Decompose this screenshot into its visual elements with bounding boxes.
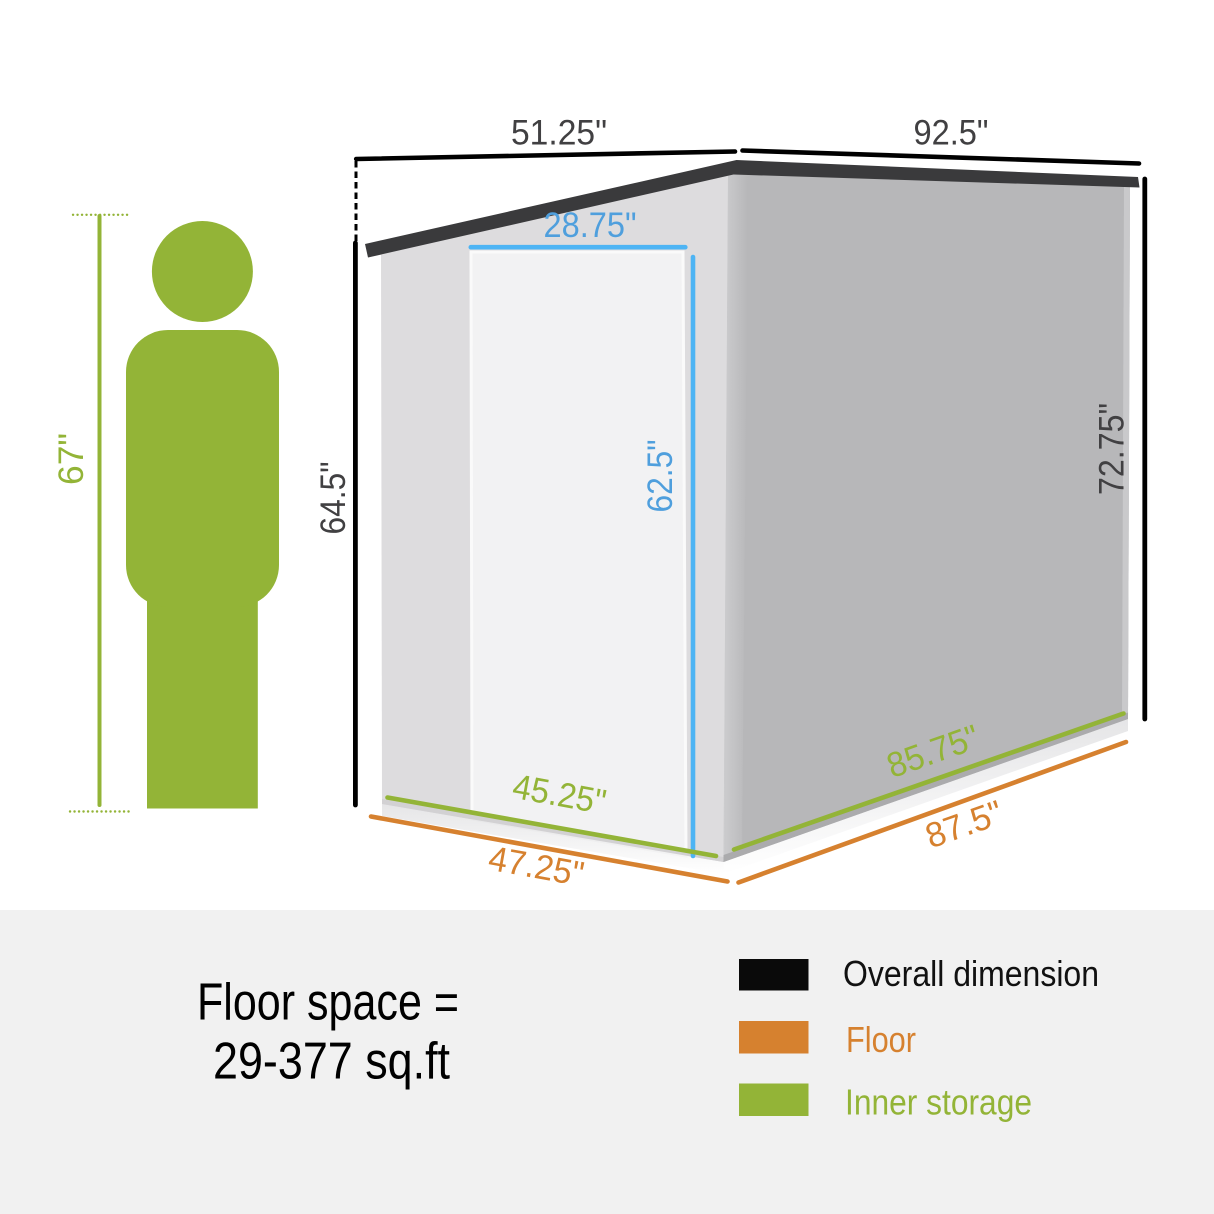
svg-text:Floor: Floor (846, 1019, 916, 1060)
svg-text:29-377 sq.ft: 29-377 sq.ft (213, 1033, 450, 1091)
svg-text:Inner storage: Inner storage (845, 1082, 1032, 1123)
svg-text:92.5": 92.5" (914, 114, 989, 153)
svg-text:64.5": 64.5" (314, 462, 353, 535)
svg-text:Overall dimension: Overall dimension (843, 953, 1099, 994)
svg-text:28.75": 28.75" (544, 206, 637, 245)
svg-text:72.75": 72.75" (1093, 403, 1132, 495)
svg-text:67": 67" (52, 433, 91, 485)
svg-text:51.25": 51.25" (511, 114, 607, 153)
svg-text:Floor space =: Floor space = (197, 974, 459, 1032)
svg-text:62.5": 62.5" (641, 440, 680, 513)
